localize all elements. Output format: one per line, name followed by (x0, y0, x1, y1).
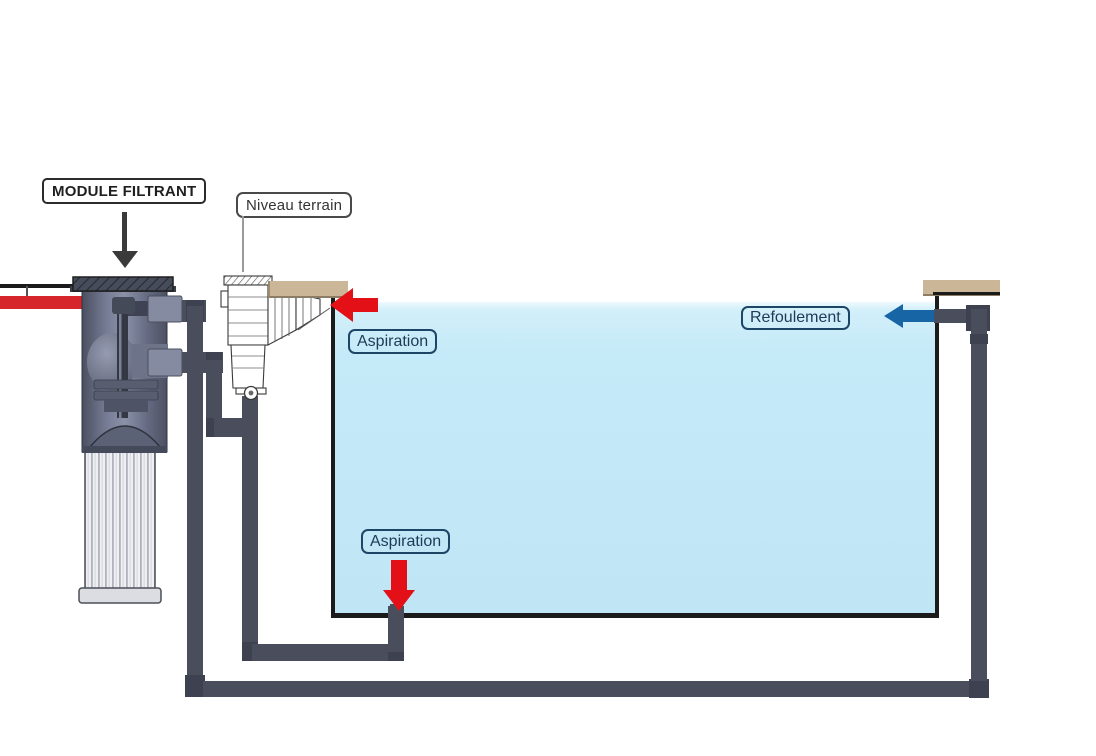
suction-arrow-skimmer-shaft (352, 298, 378, 312)
module-filtrant-arrow-shaft (122, 212, 127, 252)
aspiration-drain-label: Aspiration (361, 529, 450, 554)
niveau-terrain-text: Niveau terrain (246, 197, 342, 214)
aspiration-skimmer-text: Aspiration (357, 333, 428, 351)
suction-arrow-skimmer-icon (330, 288, 353, 322)
pipe-return-coupling (970, 334, 988, 344)
filter-lid (70, 277, 176, 292)
pump-union-nut-1 (94, 380, 158, 389)
pool-filtration-diagram: MODULE FILTRANT Niveau terrain Aspiratio… (0, 0, 1096, 756)
suction-arrow-drain-shaft (391, 560, 407, 591)
skimmer-left-stub (221, 291, 228, 307)
module-filtrant-arrow-icon (112, 251, 138, 268)
skimmer-lid-flange (224, 276, 272, 285)
aspiration-drain-text: Aspiration (370, 533, 441, 551)
vessel-bottom-rim (82, 446, 167, 453)
pump-union-nut-2 (94, 391, 158, 400)
filter-cartridge (79, 446, 161, 603)
niveau-terrain-label: Niveau terrain (236, 192, 352, 218)
pipe-drain-riser (388, 606, 404, 652)
suction-arrow-drain-icon (383, 590, 415, 611)
aspiration-skimmer-label: Aspiration (348, 329, 437, 354)
filter-outlet-stub-top (148, 296, 182, 322)
skimmer-wall-conduit (296, 294, 320, 330)
refoulement-label: Refoulement (741, 306, 850, 330)
pump-shaft-elbow (112, 297, 135, 314)
pipe-bottom-run (203, 681, 975, 697)
deck-line-right (933, 292, 1000, 295)
pipe-elbow-bottom-left (185, 675, 205, 697)
skimmer-lower-body (231, 345, 265, 388)
filter-outlet-stub-mid (148, 349, 182, 376)
return-arrow-shaft (902, 310, 934, 322)
pipe-return-inlet-stub (934, 309, 970, 323)
pump-collar (104, 400, 148, 412)
supply-pipe-joint-tick (26, 286, 28, 296)
module-filtrant-text: MODULE FILTRANT (52, 183, 196, 200)
pipe-return-riser (971, 309, 987, 681)
pipe-skimmer-drop (242, 396, 258, 646)
filter-module-illustration (58, 268, 190, 608)
pipe-elbow-bottom-right (969, 679, 989, 698)
pipe-drain-run (252, 644, 404, 661)
refoulement-text: Refoulement (750, 309, 841, 327)
return-arrow-icon (884, 304, 903, 328)
niveau-terrain-leader-line (242, 216, 244, 272)
module-filtrant-label: MODULE FILTRANT (42, 178, 206, 204)
